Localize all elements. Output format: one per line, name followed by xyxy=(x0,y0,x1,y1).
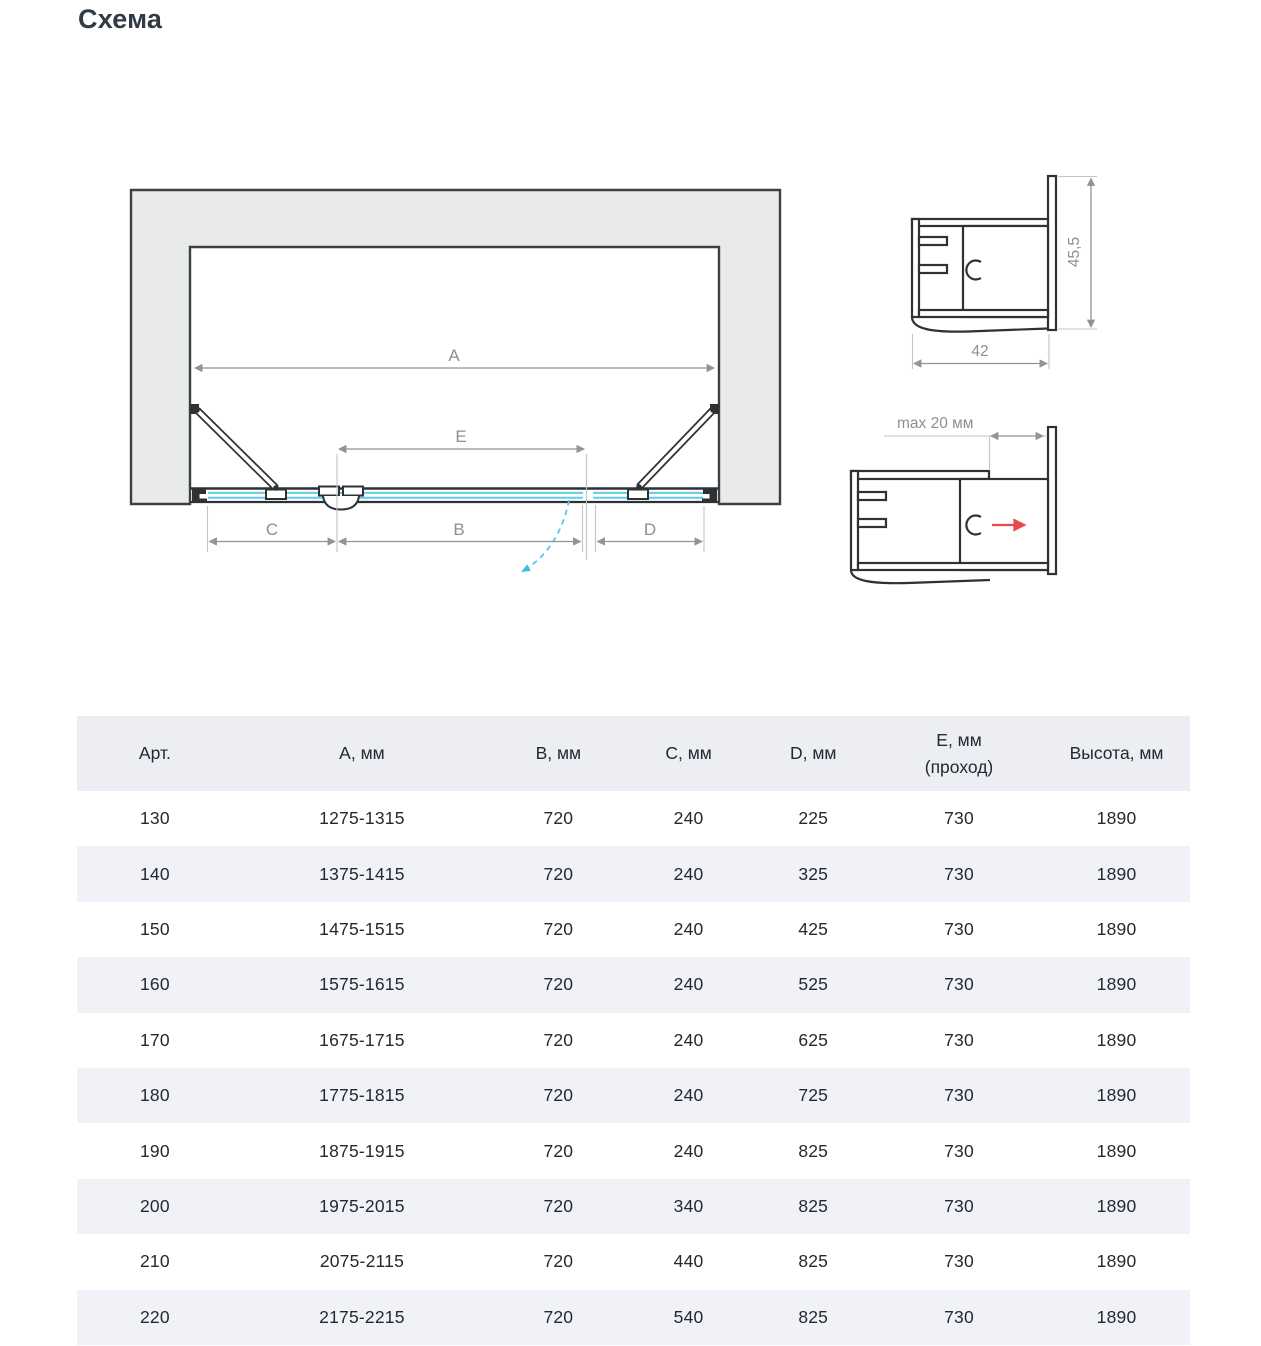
dim-label-width: 42 xyxy=(971,343,988,360)
cell-d: 625 xyxy=(751,1013,875,1068)
profile-flange xyxy=(1048,176,1056,330)
profile-bottom-arm xyxy=(919,310,1048,317)
profile-top-bar xyxy=(851,471,989,479)
cell-art: 130 xyxy=(77,791,233,846)
cell-d: 825 xyxy=(751,1234,875,1289)
door-swing-arrowhead xyxy=(521,564,531,572)
cell-c: 340 xyxy=(626,1179,752,1234)
cell-art: 150 xyxy=(77,902,233,957)
left-anchor-bracket xyxy=(266,490,286,500)
cell-a: 1275-1315 xyxy=(233,791,491,846)
cell-art: 190 xyxy=(77,1123,233,1178)
wall-profile-section xyxy=(851,427,1056,583)
table-row: 220 2175-2215 720 540 825 730 1890 xyxy=(77,1290,1190,1345)
cell-height: 1890 xyxy=(1043,1290,1190,1345)
cell-height: 1890 xyxy=(1043,1234,1190,1289)
cell-b: 720 xyxy=(491,846,626,901)
profile-bottom-lip xyxy=(912,317,1048,332)
cell-e: 730 xyxy=(875,1123,1043,1178)
door-swing-arc xyxy=(524,500,569,570)
profile-comb-bottom xyxy=(919,265,947,273)
cell-c: 240 xyxy=(626,957,752,1012)
cell-c: 240 xyxy=(626,1123,752,1178)
cell-art: 140 xyxy=(77,846,233,901)
cell-e: 730 xyxy=(875,1234,1043,1289)
cell-c: 440 xyxy=(626,1234,752,1289)
cell-d: 225 xyxy=(751,791,875,846)
profile-bottom-lip xyxy=(851,570,990,583)
table-header: Арт. А, мм В, мм С, мм D, мм Е, мм(прохо… xyxy=(77,716,1190,791)
col-header-height: Высота, мм xyxy=(1043,716,1190,791)
col-header-b: В, мм xyxy=(491,716,626,791)
cell-art: 170 xyxy=(77,1013,233,1068)
col-header-c: С, мм xyxy=(626,716,752,791)
right-strut xyxy=(636,404,719,490)
cell-e: 730 xyxy=(875,1290,1043,1345)
left-end-cap xyxy=(192,490,207,504)
plan-view: A E C B D xyxy=(131,190,780,572)
table-row: 200 1975-2015 720 340 825 730 1890 xyxy=(77,1179,1190,1234)
cell-a: 1675-1715 xyxy=(233,1013,491,1068)
cell-b: 720 xyxy=(491,1013,626,1068)
profile-bottom-arm xyxy=(858,563,1048,570)
cell-d: 325 xyxy=(751,846,875,901)
cell-d: 825 xyxy=(751,1290,875,1345)
cell-b: 720 xyxy=(491,957,626,1012)
cell-e: 730 xyxy=(875,902,1043,957)
cell-a: 1975-2015 xyxy=(233,1179,491,1234)
cell-art: 200 xyxy=(77,1179,233,1234)
cell-b: 720 xyxy=(491,1179,626,1234)
right-end-cap xyxy=(702,490,717,504)
sizes-table-wrap: Арт. А, мм В, мм С, мм D, мм Е, мм(прохо… xyxy=(77,716,1190,1345)
cell-d: 825 xyxy=(751,1179,875,1234)
profile-comb-top xyxy=(919,237,947,245)
cell-a: 2075-2115 xyxy=(233,1234,491,1289)
table-row: 140 1375-1415 720 240 325 730 1890 xyxy=(77,846,1190,901)
cell-a: 2175-2215 xyxy=(233,1290,491,1345)
cell-c: 540 xyxy=(626,1290,752,1345)
cell-height: 1890 xyxy=(1043,1068,1190,1123)
cell-a: 1875-1915 xyxy=(233,1123,491,1178)
cell-height: 1890 xyxy=(1043,957,1190,1012)
cell-e: 730 xyxy=(875,791,1043,846)
table-row: 170 1675-1715 720 240 625 730 1890 xyxy=(77,1013,1190,1068)
dim-label-a: A xyxy=(448,346,460,365)
dim-label-height: 45,5 xyxy=(1066,237,1083,267)
cell-c: 240 xyxy=(626,902,752,957)
table-row: 210 2075-2115 720 440 825 730 1890 xyxy=(77,1234,1190,1289)
profile-comb-bottom xyxy=(858,519,886,527)
dim-label-e: E xyxy=(455,427,466,446)
cell-b: 720 xyxy=(491,1068,626,1123)
cell-height: 1890 xyxy=(1043,1179,1190,1234)
dim-label-d: D xyxy=(644,520,656,539)
cell-c: 240 xyxy=(626,1068,752,1123)
cell-d: 425 xyxy=(751,902,875,957)
profile-flange xyxy=(1048,427,1056,574)
col-header-art: Арт. xyxy=(77,716,233,791)
sizes-table-body: 130 1275-1315 720 240 225 730 1890 140 1… xyxy=(77,791,1190,1345)
cell-a: 1475-1515 xyxy=(233,902,491,957)
cell-b: 720 xyxy=(491,1123,626,1178)
cell-b: 720 xyxy=(491,791,626,846)
cell-c: 240 xyxy=(626,791,752,846)
cell-d: 525 xyxy=(751,957,875,1012)
cell-b: 720 xyxy=(491,1290,626,1345)
dim-label-adjustment: max 20 мм xyxy=(897,415,973,432)
table-row: 190 1875-1915 720 240 825 730 1890 xyxy=(77,1123,1190,1178)
cell-a: 1575-1615 xyxy=(233,957,491,1012)
table-row: 160 1575-1615 720 240 525 730 1890 xyxy=(77,957,1190,1012)
dim-label-c: C xyxy=(266,520,278,539)
cell-b: 720 xyxy=(491,1234,626,1289)
cell-b: 720 xyxy=(491,902,626,957)
profile-box xyxy=(963,226,1048,317)
cell-height: 1890 xyxy=(1043,902,1190,957)
cell-height: 1890 xyxy=(1043,791,1190,846)
col-header-a: А, мм xyxy=(233,716,491,791)
cell-e: 730 xyxy=(875,1013,1043,1068)
cell-height: 1890 xyxy=(1043,846,1190,901)
cell-d: 825 xyxy=(751,1123,875,1178)
right-anchor-bracket xyxy=(628,490,648,500)
center-connector xyxy=(319,487,363,510)
cell-c: 240 xyxy=(626,846,752,901)
cell-a: 1775-1815 xyxy=(233,1068,491,1123)
corner-profile-section xyxy=(912,176,1056,332)
cell-art: 220 xyxy=(77,1290,233,1345)
cell-c: 240 xyxy=(626,1013,752,1068)
table-row: 130 1275-1315 720 240 225 730 1890 xyxy=(77,791,1190,846)
cell-height: 1890 xyxy=(1043,1013,1190,1068)
table-row: 150 1475-1515 720 240 425 730 1890 xyxy=(77,902,1190,957)
cell-d: 725 xyxy=(751,1068,875,1123)
dimension-lines xyxy=(195,368,714,542)
col-header-e: Е, мм(проход) xyxy=(875,716,1043,791)
sizes-table: Арт. А, мм В, мм С, мм D, мм Е, мм(прохо… xyxy=(77,716,1190,1345)
cell-e: 730 xyxy=(875,1068,1043,1123)
table-row: 180 1775-1815 720 240 725 730 1890 xyxy=(77,1068,1190,1123)
profile-comb-top xyxy=(858,492,886,500)
cell-e: 730 xyxy=(875,1179,1043,1234)
cell-a: 1375-1415 xyxy=(233,846,491,901)
cell-art: 210 xyxy=(77,1234,233,1289)
left-strut xyxy=(190,404,279,491)
cell-art: 180 xyxy=(77,1068,233,1123)
col-header-d: D, мм xyxy=(751,716,875,791)
cell-e: 730 xyxy=(875,957,1043,1012)
cell-art: 160 xyxy=(77,957,233,1012)
cell-e: 730 xyxy=(875,846,1043,901)
extension-lines xyxy=(208,454,705,560)
scheme-diagram: A E C B D 45,5 42 xyxy=(0,0,1261,660)
cell-height: 1890 xyxy=(1043,1123,1190,1178)
dim-label-b: B xyxy=(453,520,464,539)
